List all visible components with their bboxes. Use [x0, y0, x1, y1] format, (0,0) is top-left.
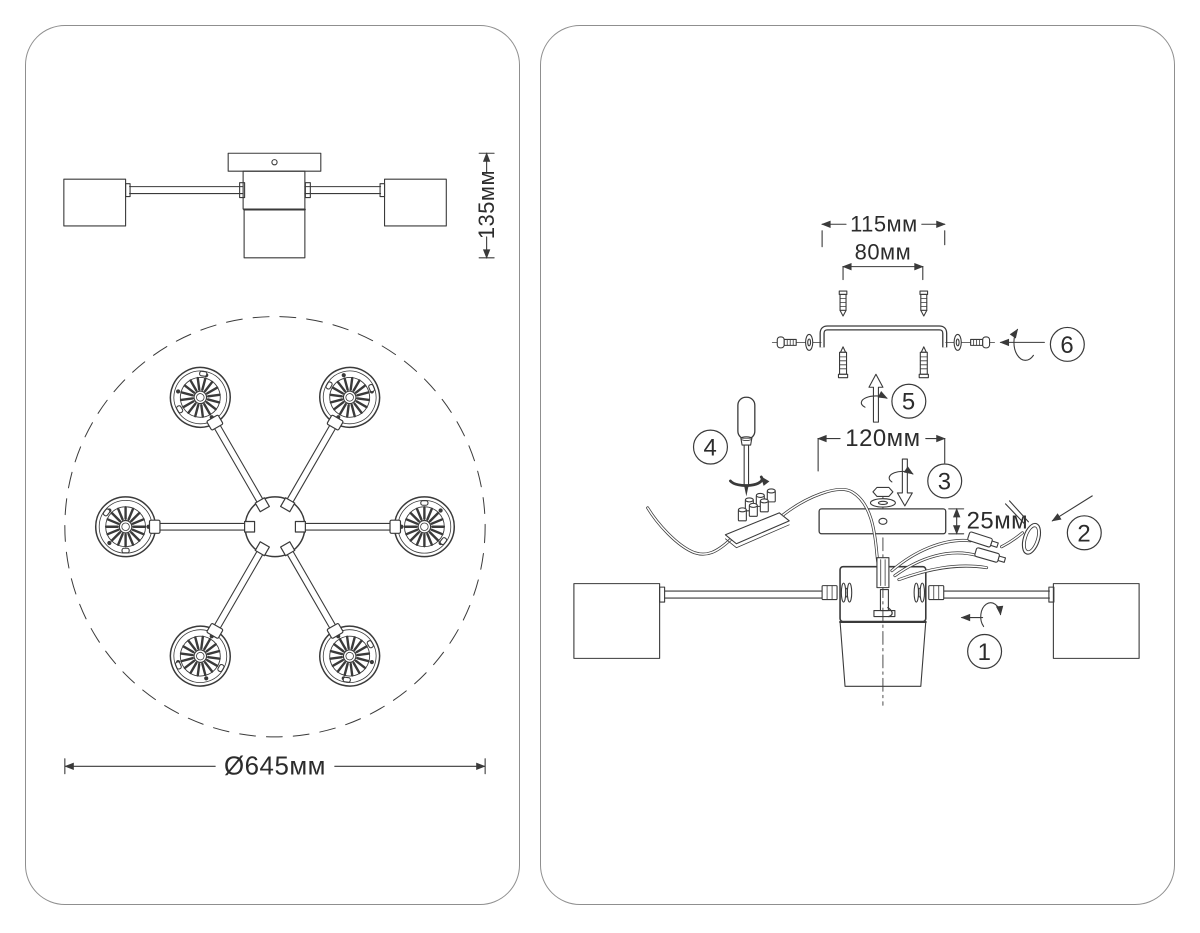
lamp-arm-4 [96, 497, 255, 557]
screwdriver [730, 397, 762, 496]
ceiling-plate [228, 153, 321, 171]
step-3-indicator [889, 459, 913, 506]
bracket-screw-right [946, 334, 995, 350]
step-1-indicator [962, 603, 1001, 627]
wall-anchor-left [839, 291, 847, 316]
mounting-bracket [822, 328, 945, 347]
step-5-number: 5 [902, 389, 916, 416]
canopy-width-label: 120мм [845, 425, 920, 452]
diameter-dim-label: Ø645мм [224, 753, 326, 781]
step-4-number: 4 [704, 435, 718, 462]
bracket-length-label: 115мм [850, 212, 918, 237]
step-5-badge: 5 [892, 384, 926, 418]
dimensions-drawing: 135мм Ø645мм [26, 26, 519, 904]
panel-dimensions: 135мм Ø645мм [25, 25, 520, 905]
wire-connectors [967, 532, 1006, 565]
mount-screw-right [919, 347, 928, 378]
plate-hole [272, 160, 277, 165]
lamp-arm-1 [295, 497, 454, 557]
step-5-indicator [861, 374, 887, 422]
left-shade-side [64, 179, 126, 226]
center-body [243, 171, 305, 209]
mount-screw-left [838, 347, 847, 378]
step-2-badge: 2 [1067, 516, 1101, 550]
terminal-screws [738, 489, 775, 521]
height-dim-label: 135мм [474, 170, 499, 239]
step-2-number: 2 [1077, 520, 1091, 547]
ceiling-canopy [819, 509, 946, 534]
assembly-drawing: 115мм 80мм [541, 26, 1174, 904]
wall-anchor-right [920, 291, 928, 316]
dim-canopy-width: 120мм [818, 425, 945, 471]
left-arm [660, 583, 852, 602]
hub-wires [892, 533, 1023, 580]
left-shade [574, 584, 660, 659]
lamp-arm-2 [259, 529, 390, 696]
fixture-body [574, 558, 1139, 687]
step-6-indicator [1001, 329, 1045, 360]
panel-assembly: 115мм 80мм [540, 25, 1175, 905]
step-4-badge: 4 [694, 430, 728, 464]
step-3-badge: 3 [928, 464, 962, 498]
right-arm [914, 583, 1054, 602]
lamp-arm-6 [259, 357, 390, 524]
instruction-sheet: 135мм Ø645мм [0, 0, 1200, 933]
left-arm-side [126, 183, 245, 198]
dim-canopy-height: 25мм [949, 507, 1028, 534]
right-arm-side [305, 183, 385, 198]
step-6-number: 6 [1060, 332, 1074, 359]
side-view [64, 153, 446, 258]
bracket-screw-left [772, 334, 821, 350]
top-view [65, 317, 485, 737]
step-1-badge: 1 [968, 634, 1002, 668]
screw-spacing-label: 80мм [855, 240, 912, 265]
center-shade-side [244, 209, 305, 258]
lamp-arm-5 [159, 357, 290, 524]
step-6-badge: 6 [1050, 327, 1084, 361]
terminal-block [648, 489, 790, 554]
right-shade-side [385, 179, 447, 226]
dim-screw-spacing: 80мм [843, 240, 923, 280]
height-dimension: 135мм [474, 153, 499, 258]
step-3-number: 3 [938, 468, 952, 495]
diameter-dimension: Ø645мм [65, 753, 485, 781]
step-1-number: 1 [978, 639, 992, 666]
right-shade [1053, 584, 1139, 659]
lamp-arm-3 [159, 529, 290, 696]
